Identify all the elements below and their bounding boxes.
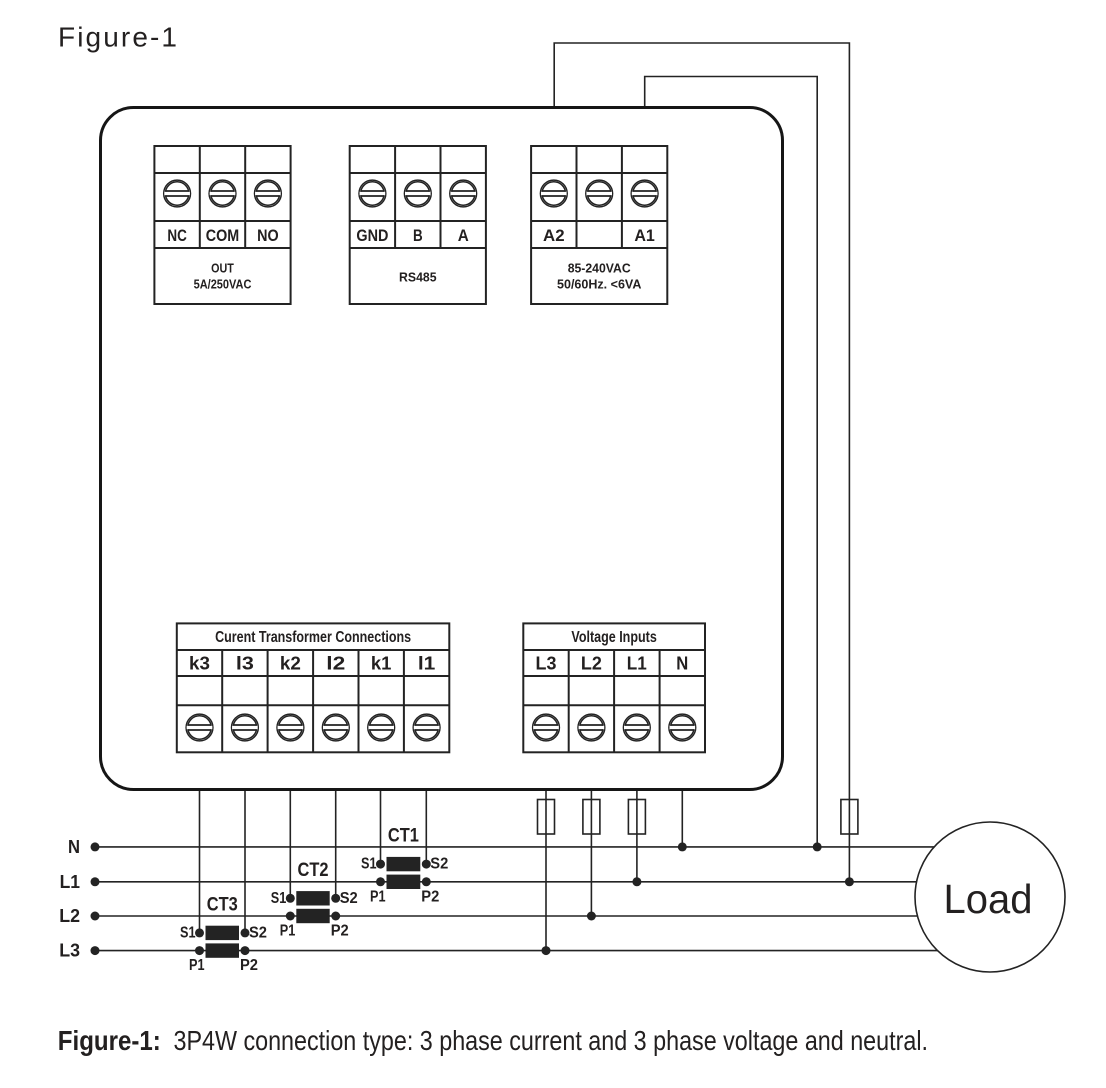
- svg-text:S2: S2: [430, 856, 448, 873]
- svg-text:k1: k1: [371, 654, 392, 674]
- svg-text:L3: L3: [59, 941, 80, 961]
- svg-text:Load: Load: [944, 876, 1033, 922]
- svg-text:50/60Hz. <6VA: 50/60Hz. <6VA: [557, 277, 642, 292]
- svg-text:L2: L2: [581, 654, 602, 674]
- svg-text:L1: L1: [627, 654, 647, 674]
- svg-text:B: B: [413, 226, 423, 245]
- svg-text:Figure-1: 3P4W connection type: Figure-1: 3P4W connection type: 3 phase …: [58, 1025, 928, 1056]
- svg-text:l1: l1: [418, 654, 436, 674]
- svg-text:85-240VAC: 85-240VAC: [568, 261, 632, 276]
- svg-text:N: N: [68, 837, 80, 857]
- svg-text:NO: NO: [257, 226, 279, 245]
- svg-text:OUT: OUT: [211, 261, 234, 276]
- svg-text:S2: S2: [249, 924, 267, 941]
- svg-text:P2: P2: [240, 957, 258, 974]
- svg-text:COM: COM: [206, 226, 239, 245]
- svg-text:A2: A2: [543, 226, 565, 245]
- svg-text:A1: A1: [634, 226, 655, 245]
- svg-text:S2: S2: [340, 890, 358, 907]
- svg-text:RS485: RS485: [399, 270, 437, 285]
- svg-text:L2: L2: [59, 906, 80, 926]
- svg-text:S1: S1: [361, 856, 377, 873]
- svg-text:P1: P1: [370, 888, 386, 905]
- svg-text:5A/250VAC: 5A/250VAC: [194, 277, 252, 292]
- svg-text:CT1: CT1: [388, 826, 419, 847]
- svg-text:Curent Transformer Connections: Curent Transformer Connections: [215, 629, 411, 646]
- svg-text:Voltage Inputs: Voltage Inputs: [571, 629, 656, 646]
- svg-text:A: A: [458, 226, 469, 245]
- svg-text:P1: P1: [280, 923, 296, 940]
- svg-text:k2: k2: [280, 654, 301, 674]
- svg-text:P2: P2: [331, 923, 349, 940]
- svg-text:CT3: CT3: [207, 894, 238, 915]
- svg-text:GND: GND: [356, 226, 388, 245]
- svg-text:NC: NC: [167, 226, 187, 245]
- svg-text:k3: k3: [189, 654, 210, 674]
- svg-text:L3: L3: [536, 654, 557, 674]
- svg-text:N: N: [676, 654, 688, 674]
- svg-text:Figure-1: Figure-1: [58, 22, 177, 53]
- svg-text:L1: L1: [60, 872, 80, 892]
- svg-text:l2: l2: [326, 654, 345, 674]
- svg-text:S1: S1: [180, 924, 196, 941]
- svg-text:S1: S1: [271, 890, 287, 907]
- svg-text:P2: P2: [421, 888, 439, 905]
- svg-text:CT2: CT2: [298, 860, 329, 881]
- svg-text:l3: l3: [236, 654, 254, 674]
- svg-text:P1: P1: [189, 957, 205, 974]
